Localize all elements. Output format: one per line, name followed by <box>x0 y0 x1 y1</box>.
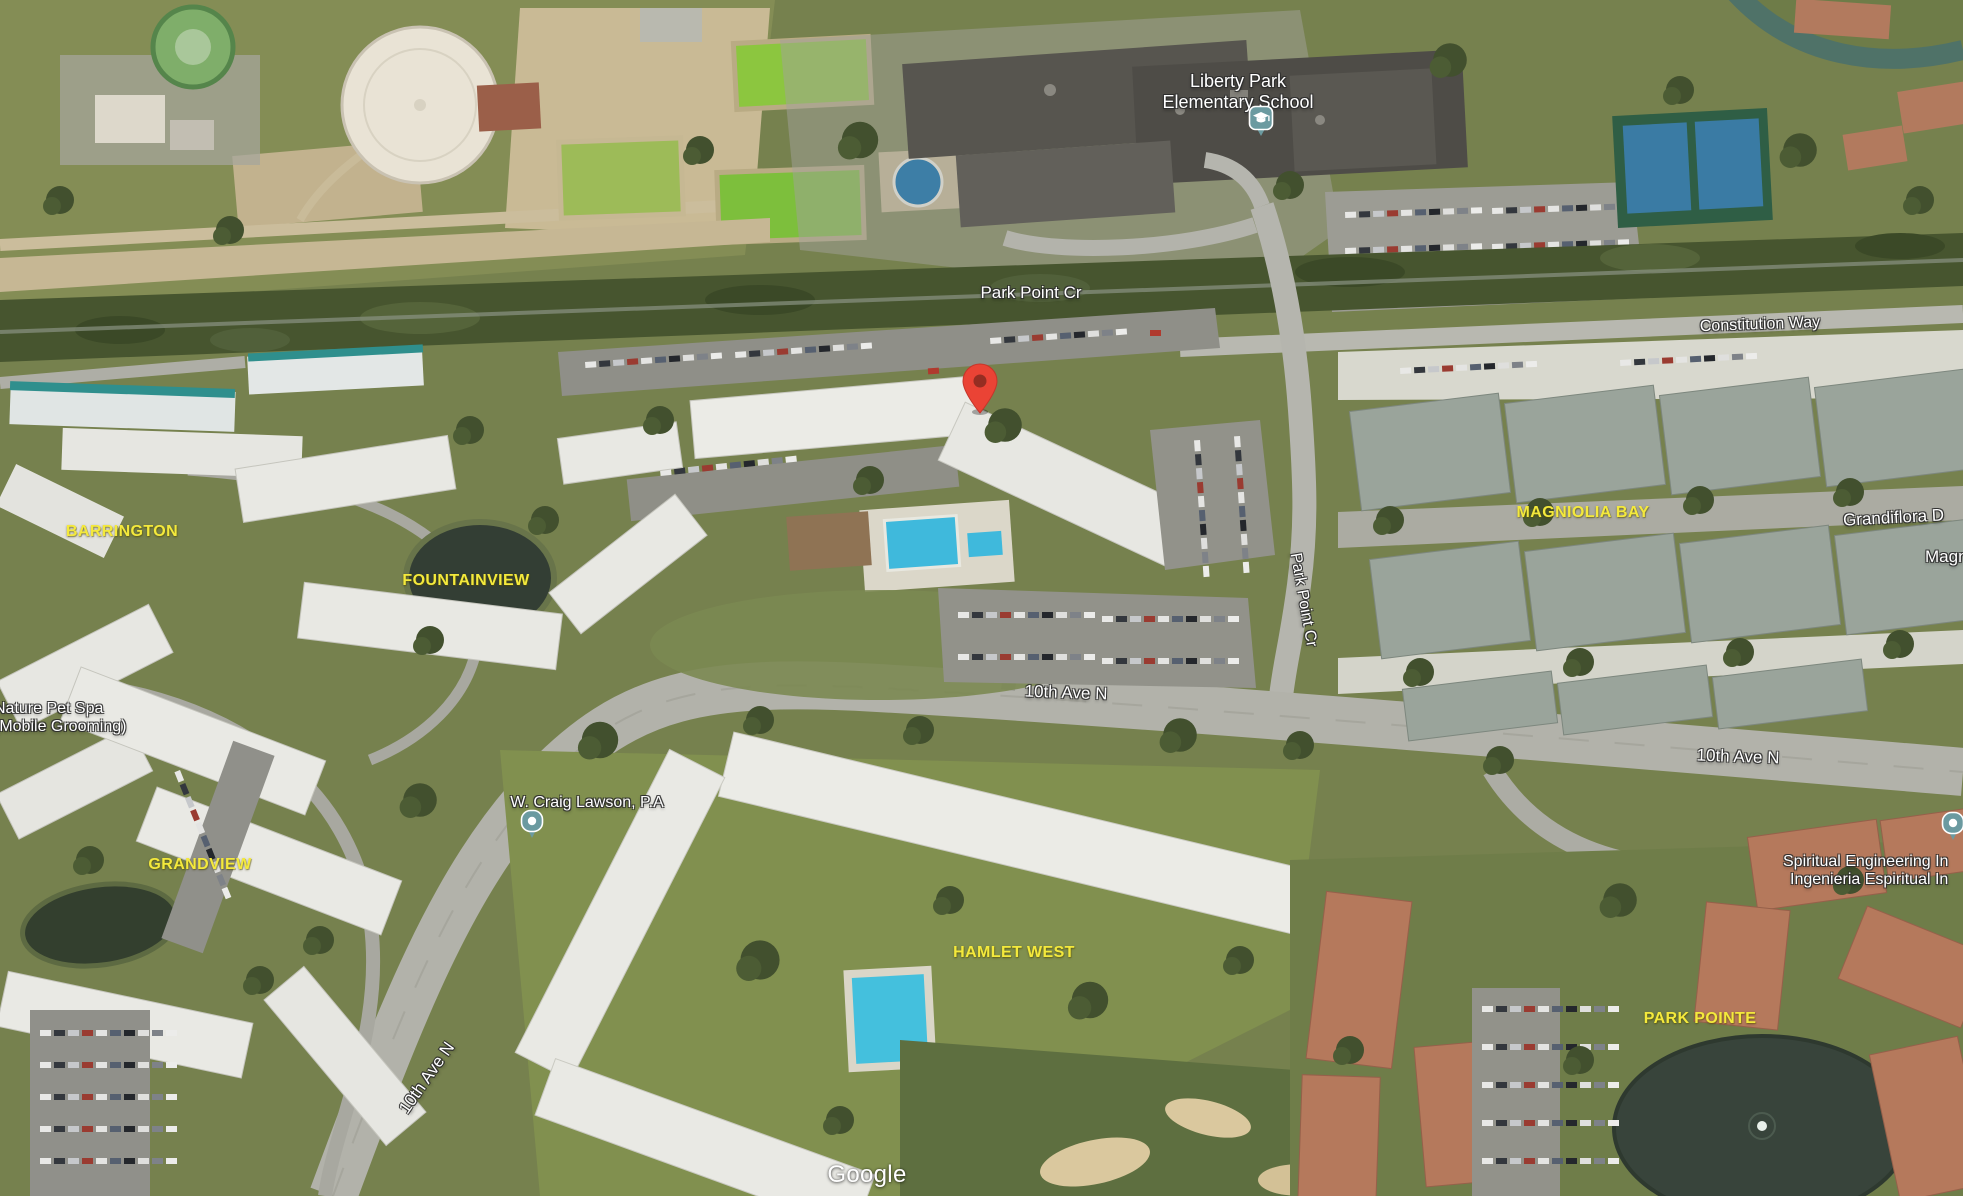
tennis-courts <box>1612 108 1773 228</box>
poi-pin-spiritual[interactable] <box>1941 811 1963 846</box>
red-marker-icon <box>960 363 1000 415</box>
label-liberty-park-elementary-school[interactable]: Liberty Park Elementary School <box>1162 71 1313 113</box>
label-road-mag-partial: Magn <box>1925 547 1963 567</box>
school-label-line1: Liberty Park <box>1162 71 1313 92</box>
satellite-map-viewport: Liberty Park Elementary School Park Poin… <box>0 0 1963 1196</box>
label-neighborhood-fountainview: FOUNTAINVIEW <box>402 572 529 590</box>
label-road-10th-ave-n-right: 10th Ave N <box>1696 746 1780 769</box>
label-neighborhood-magniolia-bay: MAGNIOLIA BAY <box>1517 504 1650 522</box>
label-neighborhood-grandview: GRANDVIEW <box>148 856 251 874</box>
school-label-line2: Elementary School <box>1162 92 1313 113</box>
label-road-park-point-cr: Park Point Cr <box>980 283 1081 303</box>
graduation-cap-icon <box>1248 105 1274 137</box>
swimming-pool <box>884 516 959 571</box>
school-poi-pin[interactable] <box>1248 105 1274 142</box>
destination-pin[interactable] <box>960 363 1000 420</box>
label-neighborhood-barrington: BARRINGTON <box>66 523 178 541</box>
poi-pin-craig-lawson[interactable] <box>520 809 544 844</box>
poi-dot-icon <box>1941 811 1963 841</box>
label-nature-pet-spa[interactable]: Nature Pet Spa (Mobile Grooming) <box>0 700 126 736</box>
label-spiritual-engineering[interactable]: Spiritual Engineering In Ingenieria Espi… <box>1783 853 1948 889</box>
spiritual-line2: Ingenieria Espiritual In <box>1783 871 1948 889</box>
label-road-10th-ave-n-center: 10th Ave N <box>1024 682 1108 705</box>
clubhouse <box>786 511 872 571</box>
label-neighborhood-hamlet-west: HAMLET WEST <box>953 944 1075 962</box>
east-parking-lot <box>1150 420 1275 570</box>
label-neighborhood-park-pointe: PARK POINTE <box>1644 1010 1757 1028</box>
retention-pond <box>559 138 684 218</box>
poi-dot-icon <box>520 809 544 839</box>
park-pointe-parking <box>1472 988 1560 1196</box>
park-pointe-pond <box>1614 1036 1910 1196</box>
nature-pet-spa-line1: Nature Pet Spa <box>0 700 126 718</box>
google-watermark: Google <box>827 1161 906 1189</box>
spiritual-line1: Spiritual Engineering In <box>1783 853 1948 871</box>
hamlet-parking-lot <box>938 588 1256 688</box>
nature-pet-spa-line2: (Mobile Grooming) <box>0 718 126 736</box>
